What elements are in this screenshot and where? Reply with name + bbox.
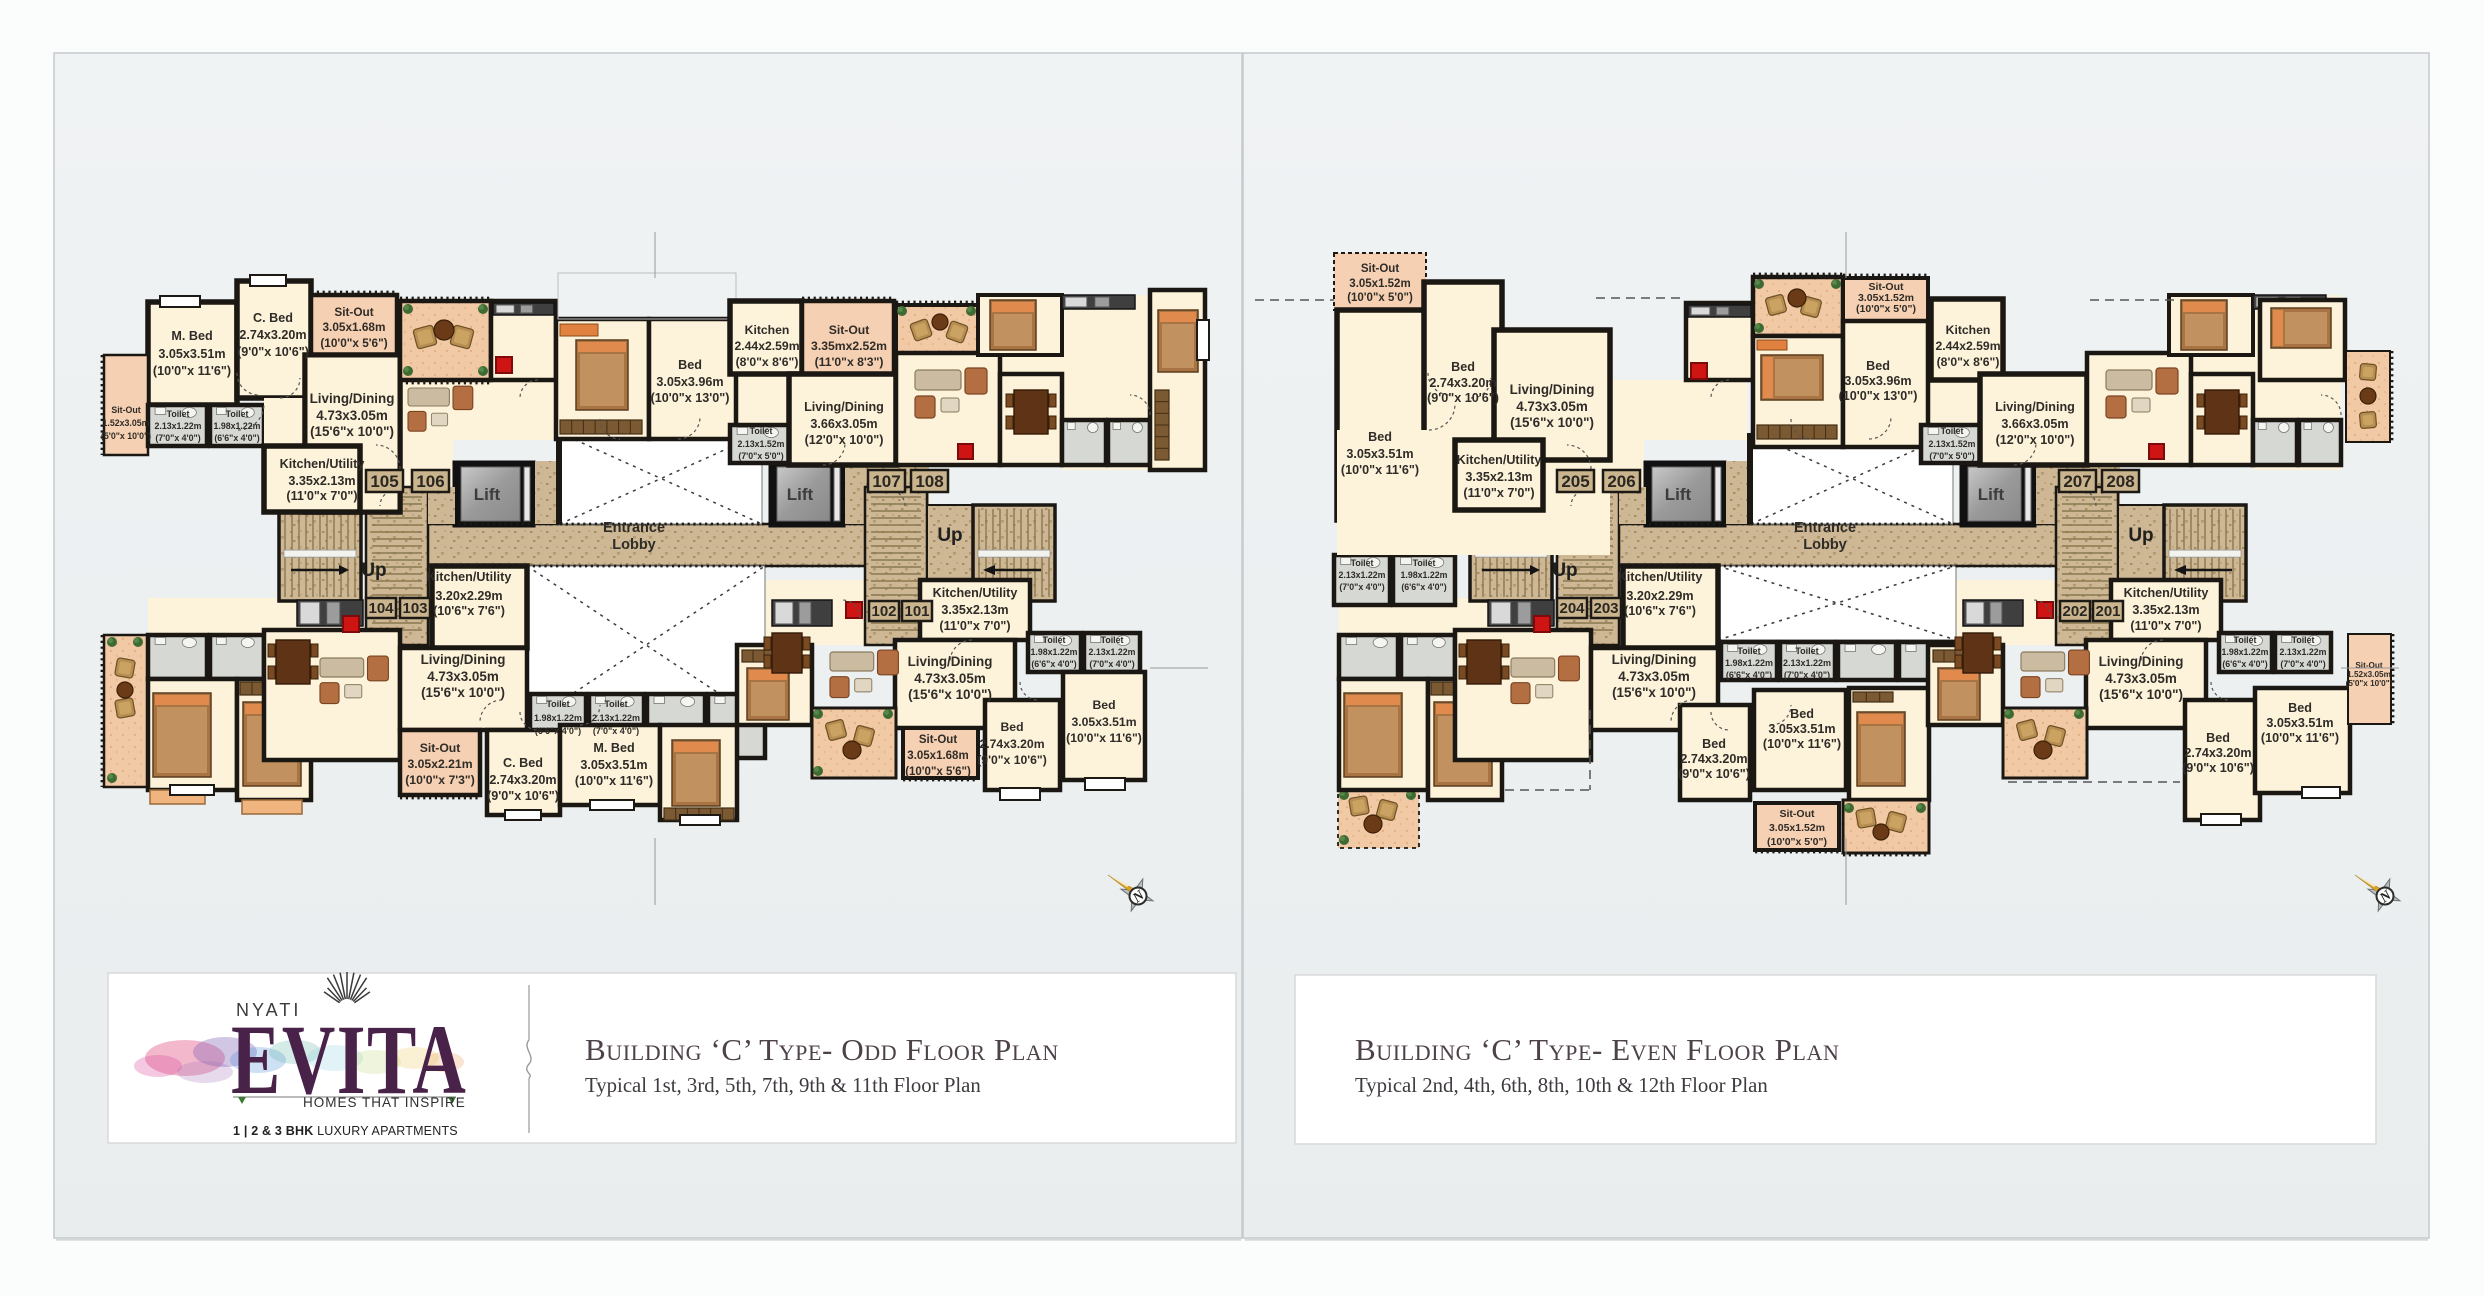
svg-text:Toilet: Toilet (1737, 646, 1760, 656)
svg-text:(9'0"x 10'6"): (9'0"x 10'6") (1678, 767, 1750, 781)
svg-text:2.74x3.20m: 2.74x3.20m (1429, 376, 1496, 390)
svg-text:(10'0"x 13'0"): (10'0"x 13'0") (1839, 389, 1918, 403)
svg-text:Living/Dining: Living/Dining (2099, 654, 2184, 669)
svg-text:Living/Dining: Living/Dining (908, 654, 993, 669)
svg-text:(7'0"x 5'0"): (7'0"x 5'0") (1929, 451, 1974, 461)
svg-text:104: 104 (368, 600, 394, 617)
svg-text:3.05x3.51m: 3.05x3.51m (158, 347, 225, 361)
svg-text:Toilet: Toilet (2292, 635, 2315, 645)
svg-text:108: 108 (915, 472, 943, 491)
svg-text:Kitchen/Utility: Kitchen/Utility (1457, 453, 1542, 467)
svg-text:(15'6"x 10'0"): (15'6"x 10'0") (908, 687, 992, 702)
svg-text:3.35x2.13m: 3.35x2.13m (2132, 603, 2199, 617)
svg-text:(6'6"x 4'0"): (6'6"x 4'0") (1726, 670, 1772, 680)
svg-text:208: 208 (2106, 472, 2134, 491)
svg-text:Toilet: Toilet (1351, 558, 1374, 568)
svg-text:(11'0"x 7'0"): (11'0"x 7'0") (939, 619, 1010, 633)
svg-text:M. Bed: M. Bed (171, 329, 212, 343)
svg-text:1.52x3.05m: 1.52x3.05m (2347, 670, 2391, 679)
svg-text:1.98x1.22m: 1.98x1.22m (534, 713, 582, 723)
svg-text:Bed: Bed (1702, 737, 1726, 751)
svg-text:(10'0"x 5'0"): (10'0"x 5'0") (1856, 303, 1916, 315)
svg-text:4.73x3.05m: 4.73x3.05m (2105, 671, 2177, 686)
svg-text:Bed: Bed (1451, 360, 1475, 374)
svg-text:4.73x3.05m: 4.73x3.05m (914, 671, 986, 686)
svg-text:Bed: Bed (1092, 698, 1115, 712)
svg-text:Toilet: Toilet (604, 699, 627, 709)
svg-text:(9'0"x 10'6"): (9'0"x 10'6") (2182, 761, 2254, 775)
svg-text:(10'0"x 13'0"): (10'0"x 13'0") (651, 391, 730, 405)
svg-text:C. Bed: C. Bed (503, 756, 543, 770)
svg-text:2.13x1.22m: 2.13x1.22m (2280, 647, 2327, 657)
svg-text:206: 206 (1607, 472, 1635, 491)
svg-text:Lift: Lift (474, 485, 501, 504)
svg-text:(7'0"x 4'0"): (7'0"x 4'0") (1784, 670, 1830, 680)
svg-text:Living/Dining: Living/Dining (1510, 382, 1595, 397)
svg-text:(7'0"x 4'0"): (7'0"x 4'0") (1089, 659, 1134, 669)
svg-text:2.74x3.20m: 2.74x3.20m (1680, 752, 1747, 766)
svg-text:Up: Up (1552, 560, 1577, 581)
svg-text:(10'0"x 7'3"): (10'0"x 7'3") (405, 773, 475, 787)
svg-text:(10'6"x 7'6"): (10'6"x 7'6") (433, 604, 505, 618)
svg-text:4.73x3.05m: 4.73x3.05m (1618, 669, 1690, 684)
svg-text:M. Bed: M. Bed (593, 741, 634, 755)
svg-text:(12'0"x 10'0"): (12'0"x 10'0") (805, 433, 884, 447)
svg-text:Lobby: Lobby (612, 537, 656, 553)
svg-text:Typical 2nd, 4th, 6th, 8th, 10: Typical 2nd, 4th, 6th, 8th, 10th & 12th … (1355, 1074, 1768, 1097)
svg-text:(6'6"x 4'0"): (6'6"x 4'0") (535, 726, 581, 736)
svg-text:(11'0"x 8'3"): (11'0"x 8'3") (815, 355, 884, 369)
svg-text:3.05x3.51m: 3.05x3.51m (1346, 447, 1413, 461)
svg-text:204: 204 (1559, 600, 1585, 617)
svg-text:3.35x2.13m: 3.35x2.13m (941, 603, 1008, 617)
svg-text:Toilet: Toilet (1413, 558, 1436, 568)
svg-text:(7'0"x 4'0"): (7'0"x 4'0") (1339, 582, 1384, 592)
svg-text:Bed: Bed (1866, 359, 1890, 373)
svg-text:(10'0"x 5'0"): (10'0"x 5'0") (1767, 836, 1827, 848)
svg-text:2.13x1.52m: 2.13x1.52m (1929, 439, 1976, 449)
svg-text:Bed: Bed (2288, 701, 2312, 715)
svg-text:3.05x1.52m: 3.05x1.52m (1349, 278, 1410, 290)
svg-text:Kitchen/Utility: Kitchen/Utility (1618, 570, 1703, 584)
svg-text:101: 101 (904, 603, 929, 620)
svg-text:Bed: Bed (678, 358, 702, 372)
svg-text:(12'0"x 10'0"): (12'0"x 10'0") (1996, 433, 2075, 447)
svg-text:201: 201 (2095, 603, 2120, 620)
svg-text:(10'0"x 11'6"): (10'0"x 11'6") (575, 774, 653, 788)
svg-text:(10'6"x 7'6"): (10'6"x 7'6") (1624, 604, 1696, 618)
svg-text:C. Bed: C. Bed (253, 311, 293, 325)
svg-text:105: 105 (370, 472, 398, 491)
svg-text:103: 103 (402, 600, 427, 617)
svg-text:(15'6"x 10'0"): (15'6"x 10'0") (421, 685, 505, 700)
svg-text:2.13x1.22m: 2.13x1.22m (592, 713, 640, 723)
svg-text:3.20x2.29m: 3.20x2.29m (435, 589, 502, 603)
svg-text:2.74x3.20m: 2.74x3.20m (239, 328, 306, 342)
svg-text:Toilet: Toilet (1043, 635, 1066, 645)
svg-text:1 | 2 & 3 BHK LUXURY APARTMENT: 1 | 2 & 3 BHK LUXURY APARTMENTS (233, 1124, 458, 1138)
svg-text:(8'0"x 8'6"): (8'0"x 8'6") (736, 355, 799, 369)
svg-text:(15'6"x 10'0"): (15'6"x 10'0") (310, 424, 394, 439)
svg-text:HOMES THAT INSPIRE: HOMES THAT INSPIRE (303, 1095, 466, 1110)
svg-text:3.05x3.51m: 3.05x3.51m (580, 758, 647, 772)
svg-text:(11'0"x 7'0"): (11'0"x 7'0") (286, 489, 357, 503)
svg-text:2.13x1.22m: 2.13x1.22m (155, 421, 202, 431)
svg-text:107: 107 (872, 472, 900, 491)
svg-text:1.98x1.22m: 1.98x1.22m (214, 421, 261, 431)
svg-text:(7'0"x 4'0"): (7'0"x 4'0") (593, 726, 639, 736)
svg-text:1.52x3.05m: 1.52x3.05m (103, 418, 150, 428)
svg-text:Sit-Out: Sit-Out (2355, 661, 2383, 670)
svg-text:Toilet: Toilet (750, 426, 773, 436)
svg-text:3.35x2.13m: 3.35x2.13m (288, 474, 355, 488)
svg-text:203: 203 (1593, 600, 1618, 617)
svg-text:3.66x3.05m: 3.66x3.05m (2001, 417, 2068, 431)
svg-text:3.05x1.52m: 3.05x1.52m (1769, 822, 1825, 834)
svg-text:Kitchen/Utility: Kitchen/Utility (280, 457, 365, 471)
svg-text:(10'0"x 11'6"): (10'0"x 11'6") (1066, 731, 1142, 745)
svg-text:2.74x3.20m: 2.74x3.20m (979, 737, 1044, 751)
svg-text:(9'0"x 10'6"): (9'0"x 10'6") (977, 753, 1047, 767)
svg-text:Lift: Lift (787, 485, 814, 504)
svg-text:4.73x3.05m: 4.73x3.05m (316, 408, 388, 423)
svg-text:3.05x1.68m: 3.05x1.68m (323, 320, 386, 334)
svg-text:2.74x3.20m: 2.74x3.20m (2184, 746, 2251, 760)
svg-text:(10'0"x 5'6"): (10'0"x 5'6") (905, 766, 971, 778)
svg-text:(6'6"x 4'0"): (6'6"x 4'0") (214, 433, 259, 443)
svg-text:205: 205 (1561, 472, 1589, 491)
svg-text:3.66x3.05m: 3.66x3.05m (810, 417, 877, 431)
svg-text:(10'0"x 5'6"): (10'0"x 5'6") (320, 336, 387, 350)
svg-text:3.05x3.51m: 3.05x3.51m (2266, 716, 2333, 730)
svg-text:Kitchen/Utility: Kitchen/Utility (427, 570, 512, 584)
svg-text:Living/Dining: Living/Dining (1995, 400, 2075, 414)
svg-text:(9'0"x 10'6"): (9'0"x 10'6") (237, 345, 309, 359)
svg-text:1.98x1.22m: 1.98x1.22m (1031, 647, 1078, 657)
svg-text:2.44x2.59m: 2.44x2.59m (734, 339, 799, 353)
svg-text:(6'6"x 4'0"): (6'6"x 4'0") (1401, 582, 1446, 592)
svg-text:(10'0"x 11'6"): (10'0"x 11'6") (1763, 737, 1841, 751)
svg-text:4.73x3.05m: 4.73x3.05m (427, 669, 499, 684)
svg-text:Toilet: Toilet (546, 699, 569, 709)
svg-text:Living/Dining: Living/Dining (1612, 652, 1697, 667)
svg-text:(7'0"x 4'0"): (7'0"x 4'0") (155, 433, 200, 443)
svg-text:(10'0"x 11'6"): (10'0"x 11'6") (2261, 731, 2339, 745)
svg-text:(15'6"x 10'0"): (15'6"x 10'0") (2099, 687, 2183, 702)
svg-text:106: 106 (416, 472, 444, 491)
svg-text:(8'0"x 8'6"): (8'0"x 8'6") (1937, 355, 2000, 369)
svg-text:3.05x3.51m: 3.05x3.51m (1768, 722, 1835, 736)
svg-text:1.98x1.22m: 1.98x1.22m (2222, 647, 2269, 657)
svg-text:(6'6"x 4'0"): (6'6"x 4'0") (2222, 659, 2267, 669)
svg-text:Toilet: Toilet (1101, 635, 1124, 645)
svg-text:Sit-Out: Sit-Out (111, 405, 140, 415)
svg-text:Building ‘C’ Type- Odd Floor P: Building ‘C’ Type- Odd Floor Plan (585, 1032, 1059, 1067)
svg-text:(11'0"x 7'0"): (11'0"x 7'0") (1463, 486, 1534, 500)
svg-text:(15'6"x 10'0"): (15'6"x 10'0") (1612, 685, 1696, 700)
svg-text:3.05x3.51m: 3.05x3.51m (1071, 715, 1136, 729)
svg-text:Kitchen: Kitchen (745, 323, 790, 337)
svg-text:(7'0"x 5'0"): (7'0"x 5'0") (738, 451, 783, 461)
svg-text:Bed: Bed (1368, 430, 1392, 444)
svg-text:(6'6"x 4'0"): (6'6"x 4'0") (1031, 659, 1076, 669)
svg-text:(10'0"x 11'6"): (10'0"x 11'6") (153, 364, 231, 378)
svg-text:(5'0"x 10'0"): (5'0"x 10'0") (2346, 679, 2393, 688)
svg-text:Sit-Out: Sit-Out (334, 305, 373, 319)
svg-text:(7'0"x 4'0"): (7'0"x 4'0") (2280, 659, 2325, 669)
svg-text:Building ‘C’ Type- Even Floor: Building ‘C’ Type- Even Floor Plan (1355, 1032, 1839, 1067)
svg-text:Sit-Out: Sit-Out (829, 323, 870, 337)
svg-text:Kitchen/Utility: Kitchen/Utility (2124, 586, 2209, 600)
svg-text:1.98x1.22m: 1.98x1.22m (1725, 658, 1773, 668)
svg-text:(10'0"x 5'0"): (10'0"x 5'0") (1347, 292, 1413, 304)
svg-text:Sit-Out: Sit-Out (1361, 263, 1399, 275)
svg-text:(10'0"x 11'6"): (10'0"x 11'6") (1341, 463, 1419, 477)
svg-text:Lobby: Lobby (1803, 537, 1847, 553)
svg-text:207: 207 (2063, 472, 2091, 491)
svg-text:3.05x3.96m: 3.05x3.96m (1844, 374, 1911, 388)
svg-text:2.13x1.22m: 2.13x1.22m (1783, 658, 1831, 668)
svg-text:(9'0"x 10'6"): (9'0"x 10'6") (487, 789, 559, 803)
svg-text:2.13x1.22m: 2.13x1.22m (1339, 570, 1386, 580)
svg-text:3.05x3.96m: 3.05x3.96m (656, 375, 723, 389)
svg-text:Toilet: Toilet (1941, 426, 1964, 436)
svg-text:Up: Up (2128, 525, 2153, 546)
svg-text:Living/Dining: Living/Dining (421, 652, 506, 667)
svg-text:Living/Dining: Living/Dining (804, 400, 884, 414)
svg-text:Lift: Lift (1978, 485, 2005, 504)
svg-text:1.98x1.22m: 1.98x1.22m (1401, 570, 1448, 580)
svg-text:4.73x3.05m: 4.73x3.05m (1516, 399, 1588, 414)
svg-text:Entrance: Entrance (603, 520, 665, 536)
svg-text:3.05x1.68m: 3.05x1.68m (907, 750, 968, 762)
svg-text:Bed: Bed (2206, 731, 2230, 745)
svg-text:Toilet: Toilet (2234, 635, 2257, 645)
svg-text:(11'0"x 7'0"): (11'0"x 7'0") (2130, 619, 2201, 633)
svg-text:Up: Up (361, 560, 386, 581)
svg-text:3.05x2.21m: 3.05x2.21m (407, 757, 472, 771)
svg-text:Up: Up (937, 525, 962, 546)
svg-text:3.20x2.29m: 3.20x2.29m (1626, 589, 1693, 603)
svg-text:3.35x2.13m: 3.35x2.13m (1465, 470, 1532, 484)
svg-text:(15'6"x 10'0"): (15'6"x 10'0") (1510, 415, 1594, 430)
svg-text:Kitchen/Utility: Kitchen/Utility (933, 586, 1018, 600)
svg-text:Toilet: Toilet (167, 409, 190, 419)
svg-text:Bed: Bed (1790, 707, 1814, 721)
svg-text:102: 102 (871, 603, 896, 620)
svg-text:(9'0"x 10'6"): (9'0"x 10'6") (1427, 391, 1499, 405)
svg-text:2.44x2.59m: 2.44x2.59m (1935, 339, 2000, 353)
svg-text:Lift: Lift (1665, 485, 1692, 504)
svg-text:Kitchen: Kitchen (1946, 323, 1991, 337)
svg-text:Typical 1st, 3rd, 5th, 7th, 9t: Typical 1st, 3rd, 5th, 7th, 9th & 11th F… (585, 1074, 981, 1097)
svg-text:3.35mx2.52m: 3.35mx2.52m (811, 339, 887, 353)
svg-text:Sit-Out: Sit-Out (420, 741, 461, 755)
svg-text:2.13x1.52m: 2.13x1.52m (738, 439, 785, 449)
svg-text:202: 202 (2062, 603, 2087, 620)
svg-text:Sit-Out: Sit-Out (919, 734, 957, 746)
svg-text:2.13x1.22m: 2.13x1.22m (1089, 647, 1136, 657)
svg-text:Living/Dining: Living/Dining (310, 391, 395, 406)
svg-text:Entrance: Entrance (1794, 520, 1856, 536)
svg-text:Toilet: Toilet (1795, 646, 1818, 656)
svg-text:Toilet: Toilet (226, 409, 249, 419)
svg-text:Sit-Out: Sit-Out (1780, 808, 1815, 820)
svg-text:2.74x3.20m: 2.74x3.20m (489, 773, 556, 787)
svg-text:(5'0"x 10'0"): (5'0"x 10'0") (101, 431, 151, 441)
svg-text:Bed: Bed (1000, 720, 1023, 734)
